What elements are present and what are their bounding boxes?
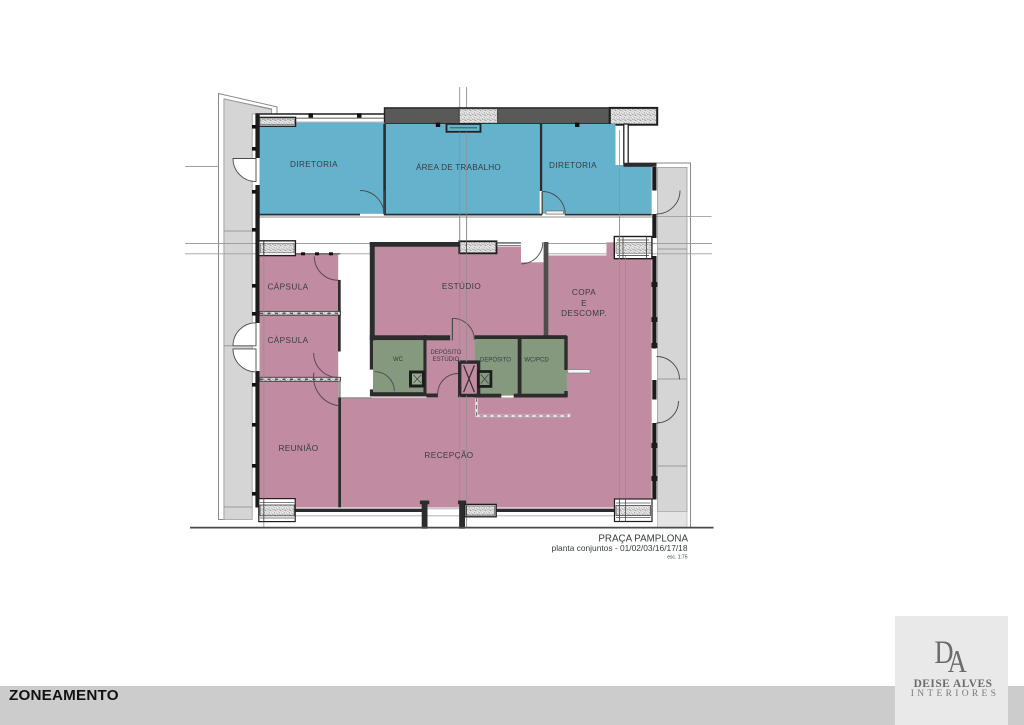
svg-text:esc. 1:75: esc. 1:75 [667, 555, 688, 561]
svg-text:planta conjuntos - 01/02/03/16: planta conjuntos - 01/02/03/16/17/18 [552, 543, 688, 553]
svg-text:ESTÚDIO: ESTÚDIO [433, 356, 460, 363]
svg-text:E: E [581, 299, 587, 308]
svg-text:ESTÚDIO: ESTÚDIO [442, 281, 481, 291]
svg-text:REUNIÃO: REUNIÃO [278, 443, 318, 453]
svg-text:CÁPSULA: CÁPSULA [267, 335, 308, 345]
svg-text:WC/PCD: WC/PCD [524, 358, 549, 364]
svg-text:DEPÓSITO: DEPÓSITO [431, 349, 462, 356]
svg-text:DIRETORIA: DIRETORIA [290, 160, 338, 169]
svg-text:DESCOMP.: DESCOMP. [561, 309, 607, 318]
svg-text:WC: WC [393, 357, 404, 363]
svg-text:DIRETORIA: DIRETORIA [549, 161, 597, 170]
svg-text:A: A [948, 643, 967, 679]
svg-text:COPA: COPA [572, 288, 596, 297]
svg-text:RECEPÇÃO: RECEPÇÃO [424, 450, 473, 460]
svg-text:ÁREA DE TRABALHO: ÁREA DE TRABALHO [416, 162, 501, 172]
svg-text:CÁPSULA: CÁPSULA [267, 282, 308, 292]
svg-text:INTERIORES: INTERIORES [911, 689, 999, 699]
svg-text:DEPÓSITO: DEPÓSITO [480, 357, 511, 364]
